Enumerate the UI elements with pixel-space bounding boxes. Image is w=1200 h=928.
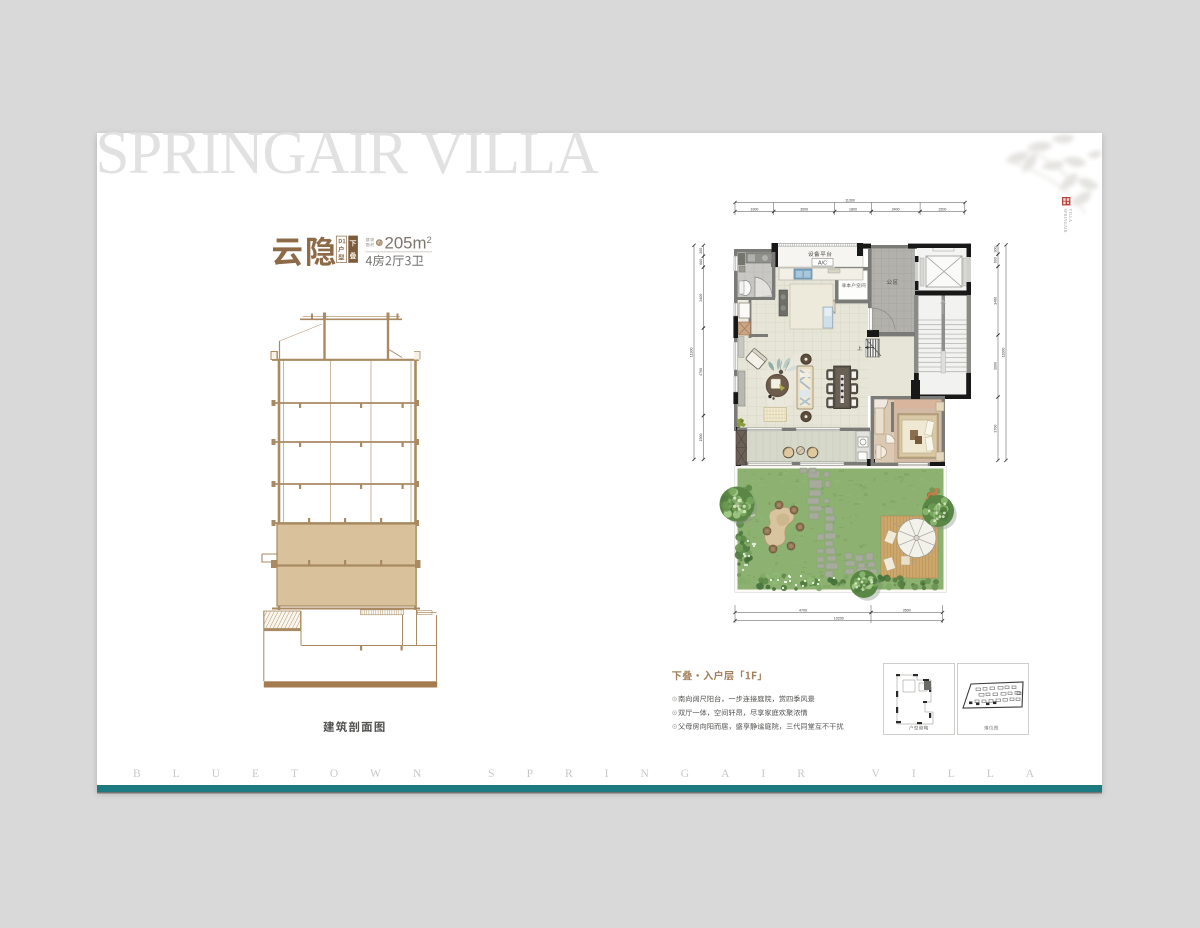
svg-text:3500: 3500 <box>903 608 911 612</box>
svg-text:VILLA: VILLA <box>1068 209 1073 223</box>
svg-text:1500: 1500 <box>699 434 703 442</box>
svg-text:4700: 4700 <box>799 608 807 612</box>
svg-text:300: 300 <box>994 247 998 253</box>
svg-text:3000: 3000 <box>800 207 808 211</box>
svg-text:600: 600 <box>699 259 703 265</box>
svg-text:1900: 1900 <box>750 207 758 211</box>
svg-text:11300: 11300 <box>845 198 855 202</box>
svg-text:2200: 2200 <box>938 207 946 211</box>
svg-text:A/C: A/C <box>818 260 827 266</box>
svg-text:205m2: 205m2 <box>385 233 432 252</box>
svg-text:2400: 2400 <box>892 207 900 211</box>
svg-text:600: 600 <box>994 257 998 263</box>
svg-text:11000: 11000 <box>1002 348 1006 358</box>
svg-text:3400: 3400 <box>699 294 703 302</box>
svg-text:SPRINGAIR: SPRINGAIR <box>1063 209 1068 233</box>
svg-text:10200: 10200 <box>834 617 844 621</box>
svg-text:3700: 3700 <box>994 425 998 433</box>
svg-text:11300: 11300 <box>690 347 694 357</box>
svg-text:3000: 3000 <box>994 362 998 370</box>
svg-text:1800: 1800 <box>849 207 857 211</box>
svg-text:300: 300 <box>699 248 703 254</box>
svg-text:3400: 3400 <box>994 297 998 305</box>
svg-text:4700: 4700 <box>699 368 703 376</box>
